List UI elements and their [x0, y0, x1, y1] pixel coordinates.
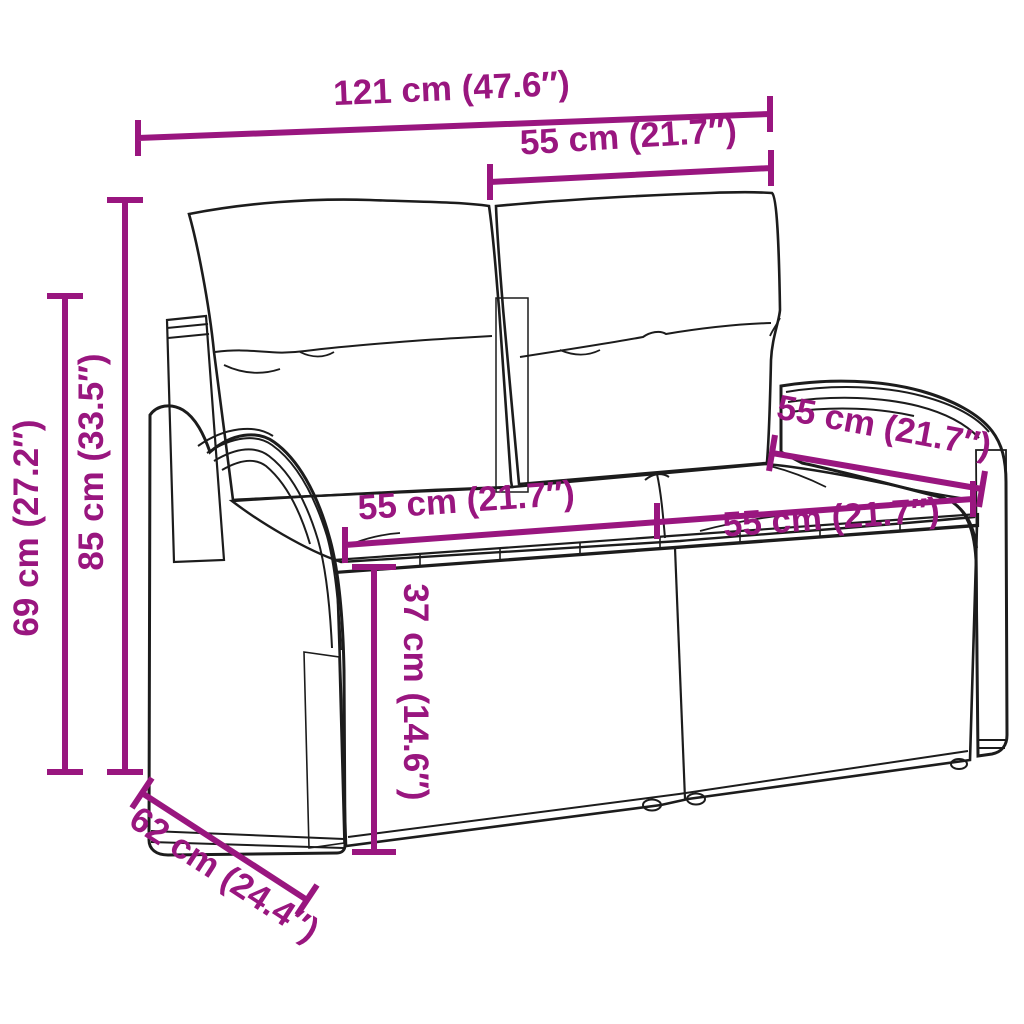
cushion-crease	[520, 323, 771, 357]
dim-armrest-height-label: 69 cm (27.2″)	[7, 419, 46, 636]
armrest-base-band	[977, 740, 1006, 748]
armrest-roll	[198, 429, 341, 650]
cushion-crease	[215, 336, 492, 353]
dim-backrest-width-label: 55 cm (21.7″)	[519, 110, 738, 162]
dim-seat-height-line	[352, 567, 396, 852]
dim-overall-height-label: 85 cm (33.5″)	[72, 353, 111, 570]
right-back-cushion	[496, 192, 780, 484]
dim-overall-depth: 62 cm (24.4″)	[123, 778, 326, 950]
dim-overall-width-label: 121 cm (47.6″)	[332, 64, 570, 113]
bench-dimension-diagram: 121 cm (47.6″) 55 cm (21.7″) 85 cm (33.5…	[0, 0, 1024, 1024]
armrest-front-hatch	[304, 652, 344, 848]
dim-seat-width-left-label: 55 cm (21.7″)	[357, 474, 576, 528]
base-rim	[348, 751, 968, 837]
dim-overall-depth-label: 62 cm (24.4″)	[123, 799, 326, 950]
left-armrest	[149, 406, 345, 855]
dim-overall-height-line	[107, 200, 143, 772]
dimension-diagram-canvas: 121 cm (47.6″) 55 cm (21.7″) 85 cm (33.5…	[0, 0, 1024, 1024]
base-seam	[675, 548, 685, 799]
cushion-fold	[224, 352, 334, 373]
left-back-cushion	[189, 200, 512, 500]
dim-overall-height: 85 cm (33.5″)	[72, 200, 143, 772]
dim-seat-width-right-label: 55 cm (21.7″)	[722, 491, 941, 545]
dim-backrest-width: 55 cm (21.7″)	[490, 110, 771, 200]
dim-seat-height-label: 37 cm (14.6″)	[396, 583, 435, 800]
back-post-left-cap	[167, 324, 209, 338]
dim-seat-height: 37 cm (14.6″)	[352, 567, 435, 852]
